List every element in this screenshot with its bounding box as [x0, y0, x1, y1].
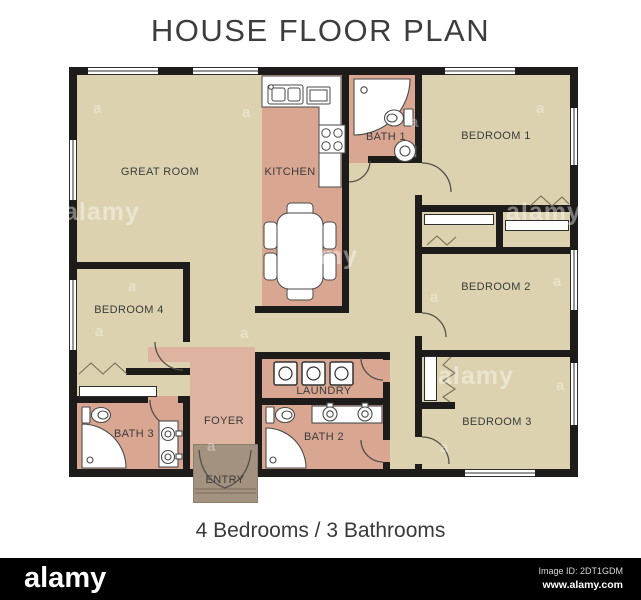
room-label-kitchen: KITCHEN [264, 166, 315, 178]
room-label-great-room: GREAT ROOM [121, 166, 199, 178]
corner-shower-icon [266, 428, 306, 468]
door-arc-bedroom4 [155, 342, 183, 370]
room-label-bath3: BATH 3 [114, 428, 154, 440]
door-arc-bedroom3 [422, 437, 449, 464]
toilet-icon [82, 407, 90, 423]
entry-steps [195, 489, 256, 493]
room-label-bath1: BATH 1 [366, 131, 406, 143]
alamy-logo: alamy [24, 562, 106, 595]
footer-info: Image ID: 2DT1GDM www.alamy.com [538, 566, 623, 591]
floorplan-linework [0, 0, 641, 600]
room-label-bedroom4: BEDROOM 4 [94, 304, 164, 316]
toilet-icon [266, 407, 274, 423]
footer-bar: alamy Image ID: 2DT1GDM www.alamy.com [0, 558, 641, 600]
room-label-laundry: LAUNDRY [296, 385, 351, 397]
plan-caption: 4 Bedrooms / 3 Bathrooms [0, 519, 641, 543]
door-arc-laundry [361, 358, 383, 380]
laundry-machines-icon [274, 362, 353, 385]
room-label-foyer: FOYER [204, 415, 244, 427]
room-label-bedroom2: BEDROOM 2 [461, 281, 531, 293]
image-id-text: Image ID: 2DT1GDM [538, 566, 623, 576]
door-arc-bedroom2 [422, 313, 446, 337]
room-label-bath2: BATH 2 [304, 431, 344, 443]
bath1-fixtures [354, 79, 416, 162]
room-label-bedroom3: BEDROOM 3 [462, 416, 532, 428]
dining-table-icon [264, 203, 336, 300]
toilet-icon [404, 109, 413, 126]
door-arc-bedroom1 [422, 163, 451, 192]
room-label-bedroom1: BEDROOM 1 [461, 130, 531, 142]
door-arc-bath2 [361, 440, 383, 462]
door-arc-bath1 [349, 161, 370, 182]
alamy-url-text: www.alamy.com [538, 579, 623, 591]
room-label-entry: ENTRY [205, 474, 244, 486]
